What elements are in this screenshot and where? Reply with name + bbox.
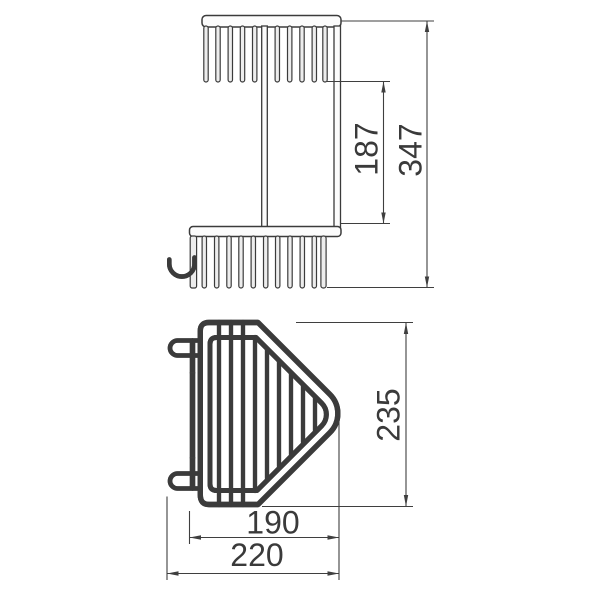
basket-wire [312,26,316,82]
basket-wire [240,26,244,82]
dim-basket-width-label: 190 [246,505,299,541]
basket-wire [216,26,220,82]
basket-wire [276,236,280,288]
dim-overall-height-label: 347 [393,123,429,176]
basket-wire [253,26,257,82]
basket-wire [202,236,206,288]
basket-wire [264,236,268,288]
basket-wire [239,236,243,288]
right-support-post [334,26,341,228]
basket-wire [275,26,279,82]
basket-wire [323,26,327,82]
basket-wire [300,26,304,82]
technical-drawing: 187 347 235 190 220 [0,0,600,600]
basket-wire [227,236,231,288]
lower-shelf-rail [190,227,342,237]
basket-wire [300,236,304,288]
front-view [169,16,341,289]
basket-wire [312,236,316,288]
plan-view [170,322,338,505]
dim-depth-label: 235 [371,388,407,441]
center-support-post [262,26,268,228]
upper-shelf-rail [202,16,341,28]
dim-tier-spacing-label: 187 [349,122,385,175]
lower-shelf-wires [202,236,326,288]
drawing-canvas: 187 347 235 190 220 [0,0,600,600]
basket-wire [215,236,219,288]
basket-wire [288,26,292,82]
front-dimensions: 187 347 [327,21,434,288]
basket-wire [321,236,326,288]
basket-wire [288,236,292,288]
dim-overall-width-label: 220 [230,537,283,573]
basket-wire [204,26,208,82]
basket-wire [251,236,255,288]
basket-wire [228,26,232,82]
